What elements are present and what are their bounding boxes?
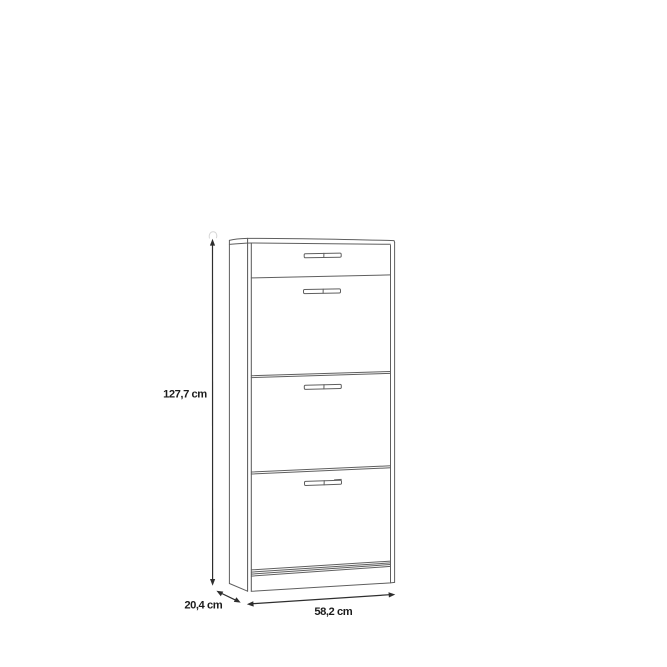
svg-text:127,7 cm: 127,7 cm: [163, 389, 207, 401]
svg-text:20,4 cm: 20,4 cm: [184, 600, 222, 612]
svg-text:58,2 cm: 58,2 cm: [314, 606, 352, 618]
